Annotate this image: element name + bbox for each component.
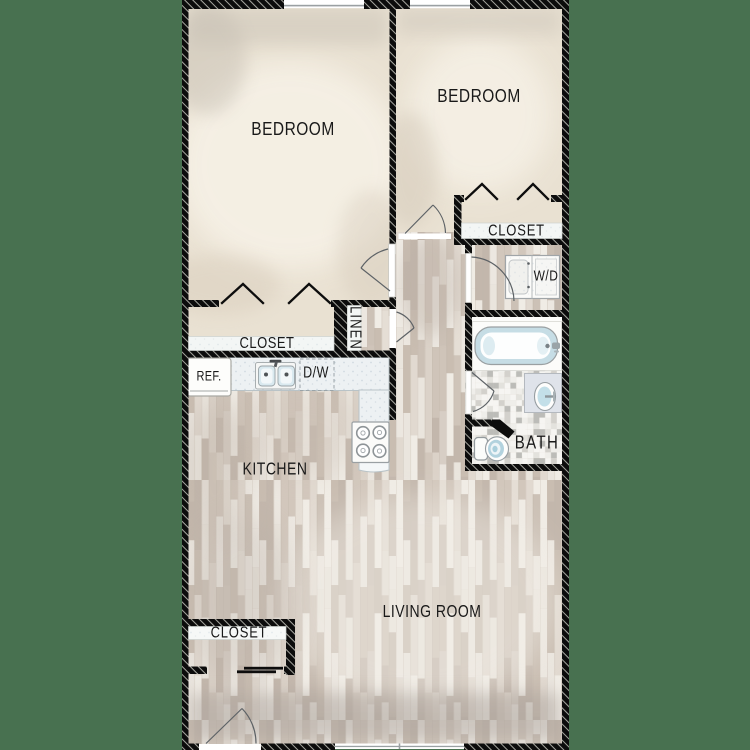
svg-text:LIVING ROOM: LIVING ROOM — [383, 603, 482, 622]
svg-text:BEDROOM: BEDROOM — [437, 84, 520, 106]
svg-text:CLOSET: CLOSET — [211, 625, 268, 642]
svg-text:BEDROOM: BEDROOM — [251, 117, 334, 139]
svg-text:REF.: REF. — [196, 369, 221, 384]
svg-text:W/D: W/D — [534, 267, 559, 283]
svg-text:CLOSET: CLOSET — [488, 223, 545, 240]
svg-text:KITCHEN: KITCHEN — [243, 460, 308, 479]
svg-text:LINEN: LINEN — [346, 306, 363, 350]
svg-text:BATH: BATH — [515, 432, 559, 453]
svg-text:CLOSET: CLOSET — [239, 335, 294, 352]
svg-text:D/W: D/W — [303, 363, 329, 380]
